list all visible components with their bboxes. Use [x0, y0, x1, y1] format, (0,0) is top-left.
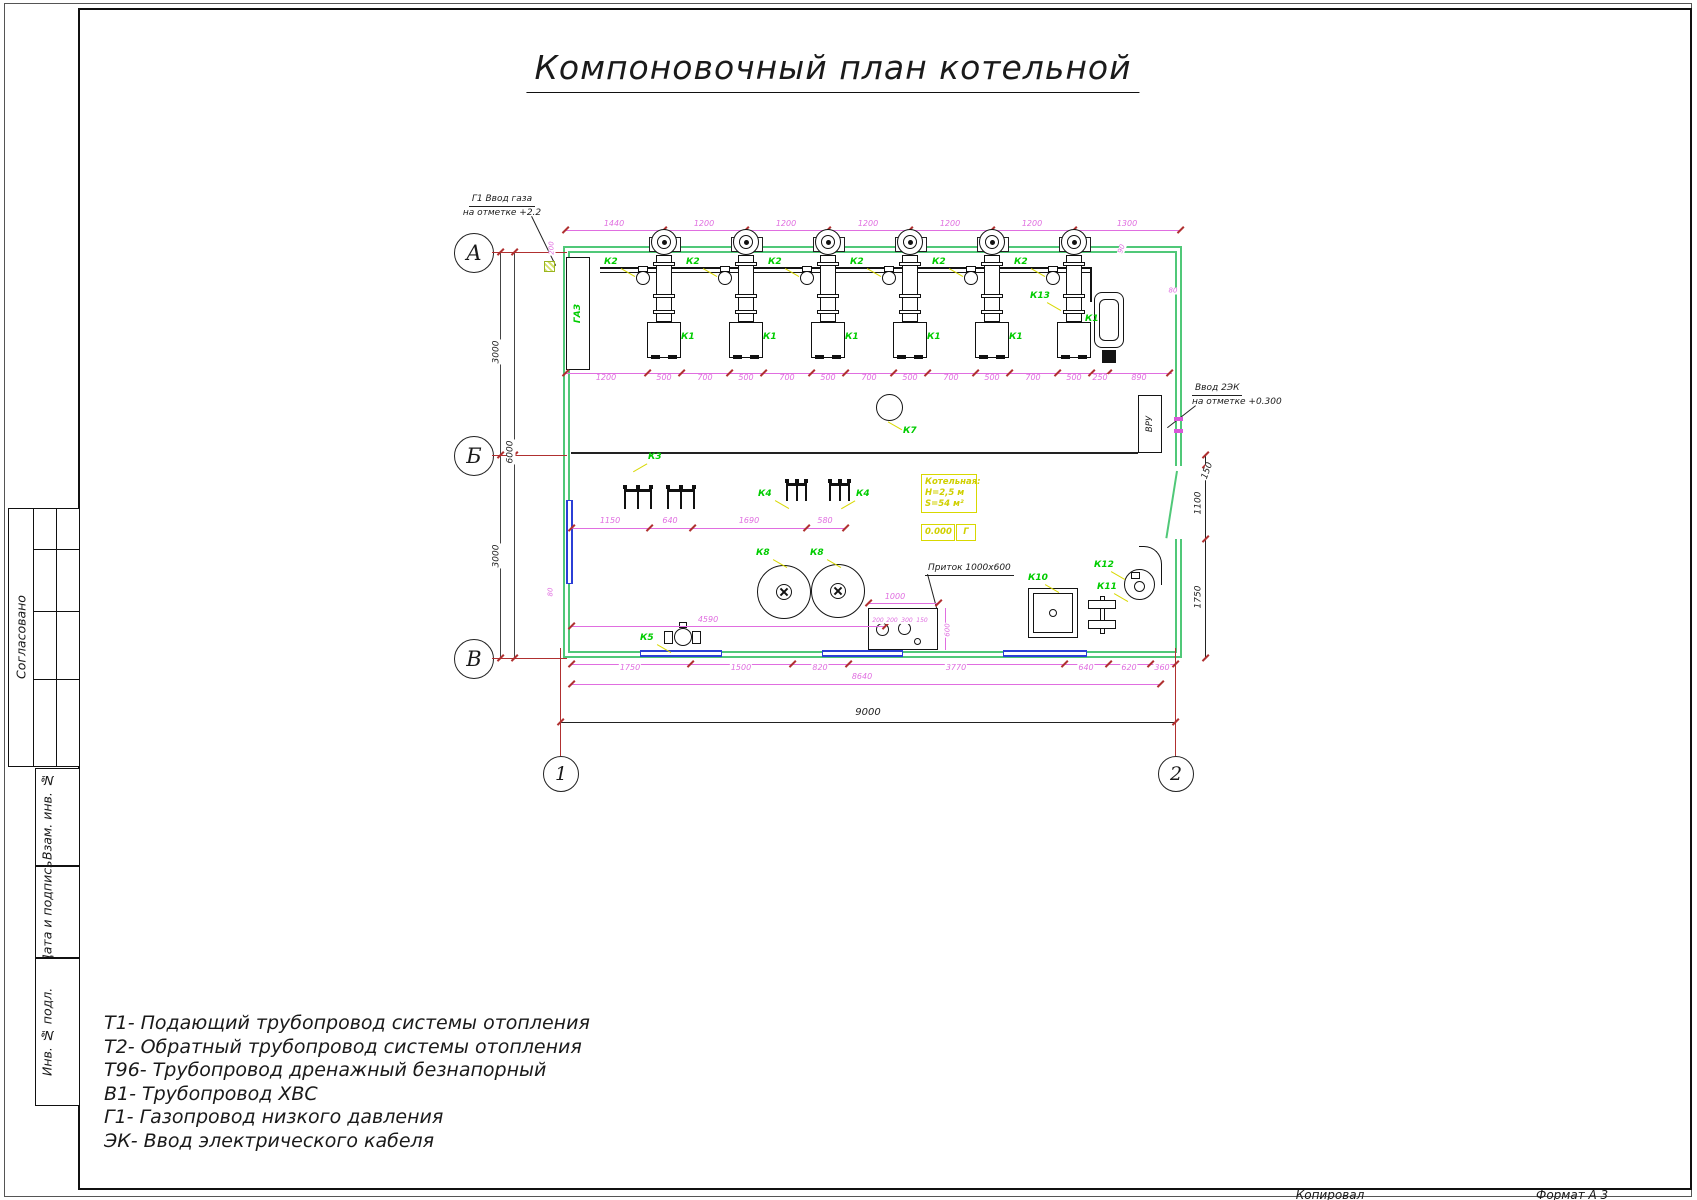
window-bottom-wall [1003, 650, 1087, 657]
stamp-divider [56, 509, 57, 766]
stamp-divider [33, 549, 79, 550]
vru-panel: ВРУ [1138, 395, 1162, 453]
stamp-divider [33, 509, 34, 766]
axis-col-2-label: 2 [1170, 763, 1182, 785]
k13-device-base [1102, 350, 1116, 363]
pritok-annotation: Приток 1000х600 [925, 562, 1014, 576]
stamp-divider [33, 611, 79, 612]
stamp-data-podpis-block: Дата и подпись [35, 866, 80, 958]
legend-line: В1- Трубопровод ХВС [104, 1083, 590, 1107]
stamp-vzam-label: Взам. инв. № [36, 769, 58, 865]
stamp-divider [33, 679, 79, 680]
k11-flange [1088, 600, 1116, 609]
k5-pump-flange [692, 631, 701, 644]
manifold-pipe [600, 267, 1092, 269]
cable-inlet-annotation: Ввод 2ЭК на отметке +0.300 [1192, 382, 1282, 408]
k13-device-inner [1099, 299, 1119, 341]
legend-line: Г1- Газопровод низкого давления [104, 1106, 590, 1130]
cable-inlet-mark [1174, 429, 1183, 433]
pipe-legend: Т1- Подающий трубопровод системы отоплен… [104, 1012, 590, 1153]
air-intake-hole [914, 638, 921, 645]
k5-pump [674, 628, 692, 646]
legend-line: Т96- Трубопровод дренажный безнапорный [104, 1059, 590, 1083]
room-info-box: Котельная: Н=2,5 м S=54 м² [921, 474, 977, 513]
room-letter-box: Г [956, 524, 976, 541]
axis-row-b-label: Б [466, 444, 481, 468]
k7-drain-circle [876, 394, 903, 421]
window-left-wall [566, 500, 573, 584]
axis-row-b: Б [454, 436, 494, 476]
air-intake-hole [898, 622, 911, 635]
floor-level-box: 0.000 [921, 524, 955, 541]
stamp-inv-podl-block: Инв. № подл. [35, 958, 80, 1106]
stamp-vzam-block: Взам. инв. № [35, 768, 80, 866]
axis-row-v-label: В [466, 647, 481, 671]
drawing-sheet: Компоновочный план котельной Согласовано… [0, 0, 1697, 1200]
axis-row-v: В [454, 639, 494, 679]
room-height: Н=2,5 м [925, 488, 973, 499]
vru-panel-label: ВРУ [1145, 416, 1155, 432]
gas-cabinet-label: ГАЗ [573, 304, 583, 323]
gas-inlet-mark [544, 261, 555, 272]
cable-inlet-annotation-line2: на отметке +0.300 [1192, 397, 1282, 407]
window-bottom-wall [640, 650, 722, 657]
stamp-data-podpis-label: Дата и подпись [36, 867, 58, 957]
legend-line: ЭК- Ввод электрического кабеля [104, 1130, 590, 1154]
k12-pump-body [1134, 581, 1145, 592]
stamp-soglasovano-block: Согласовано [8, 508, 80, 767]
axis-row-a: А [454, 233, 494, 273]
cable-inlet-annotation-line1: Ввод 2ЭК [1192, 382, 1242, 396]
stamp-inv-podl-label: Инв. № подл. [36, 959, 58, 1105]
pritok-annotation-text: Приток 1000х600 [925, 562, 1014, 576]
k12-pump-top [1131, 572, 1140, 579]
gas-inlet-annotation: Г1 Ввод газа на отметке +2.2 [452, 193, 552, 219]
axis-col-2: 2 [1158, 756, 1194, 792]
axis-col-1: 1 [543, 756, 579, 792]
partition-wall [571, 452, 1138, 454]
axis-col-1-label: 1 [555, 763, 567, 785]
gas-inlet-annotation-line2: на отметке +2.2 [463, 208, 541, 218]
room-name: Котельная: [925, 477, 973, 488]
axis-row-a-label: А [466, 241, 482, 265]
k5-pump-flange [664, 631, 673, 644]
window-bottom-wall [822, 650, 903, 657]
manifold-riser-pipe [1090, 268, 1092, 302]
air-intake-hole [876, 623, 889, 636]
legend-line: Т2- Обратный трубопровод системы отоплен… [104, 1036, 590, 1060]
gas-cabinet: ГАЗ [566, 257, 590, 370]
manifold-pipe [600, 272, 1092, 273]
k10-pit-drain [1049, 609, 1057, 617]
gas-inlet-annotation-line1: Г1 Ввод газа [469, 193, 535, 207]
format-label: Формат А 3 [1536, 1188, 1608, 1200]
legend-line: Т1- Подающий трубопровод системы отоплен… [104, 1012, 590, 1036]
k11-flange [1088, 620, 1116, 629]
kopiroval-label: Копировал [1285, 1188, 1375, 1200]
cable-inlet-mark [1174, 417, 1183, 421]
room-area: S=54 м² [925, 499, 973, 510]
drawing-title: Компоновочный план котельной [526, 48, 1139, 93]
stamp-soglasovano-label: Согласовано [9, 509, 33, 766]
